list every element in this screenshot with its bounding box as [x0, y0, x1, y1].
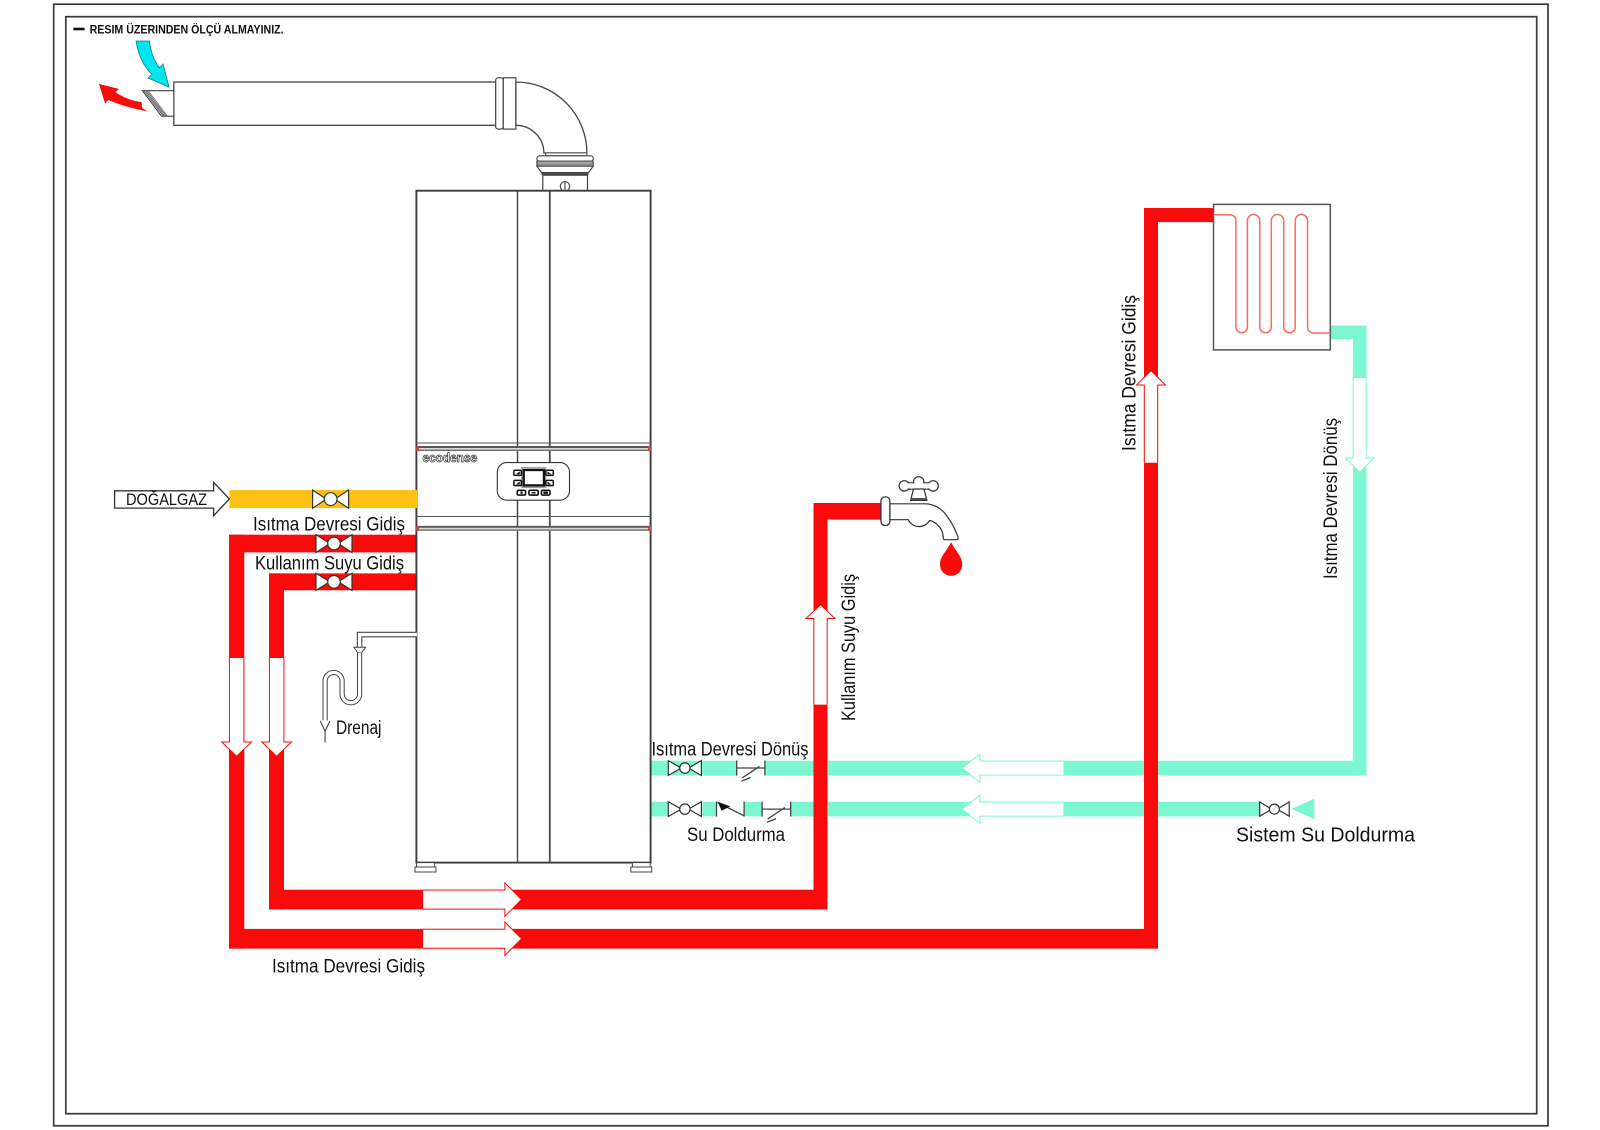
svg-text:Sistem Su Doldurma: Sistem Su Doldurma: [1236, 825, 1416, 847]
svg-text:RESIM ÜZERINDEN ÖLÇÜ ALMAYINIZ: RESIM ÜZERINDEN ÖLÇÜ ALMAYINIZ.: [90, 22, 284, 37]
svg-text:Drenaj: Drenaj: [336, 718, 382, 739]
svg-text:Isıtma Devresi Dönüş: Isıtma Devresi Dönüş: [652, 739, 809, 760]
svg-text:Isıtma Devresi Dönüş: Isıtma Devresi Dönüş: [1321, 418, 1342, 579]
svg-text:DOĞALGAZ: DOĞALGAZ: [126, 490, 207, 509]
svg-text:ecodense: ecodense: [423, 451, 478, 465]
svg-text:Kullanım Suyu Gidiş: Kullanım Suyu Gidiş: [839, 574, 860, 721]
svg-text:Isıtma Devresi Gidiş: Isıtma Devresi Gidiş: [272, 957, 425, 978]
svg-text:Kullanım Suyu Gidiş: Kullanım Suyu Gidiş: [255, 554, 404, 575]
svg-text:Isıtma Devresi Gidiş: Isıtma Devresi Gidiş: [1120, 295, 1141, 451]
svg-text:Isıtma Devresi Gidiş: Isıtma Devresi Gidiş: [253, 515, 405, 536]
svg-text:Su Doldurma: Su Doldurma: [687, 825, 785, 846]
